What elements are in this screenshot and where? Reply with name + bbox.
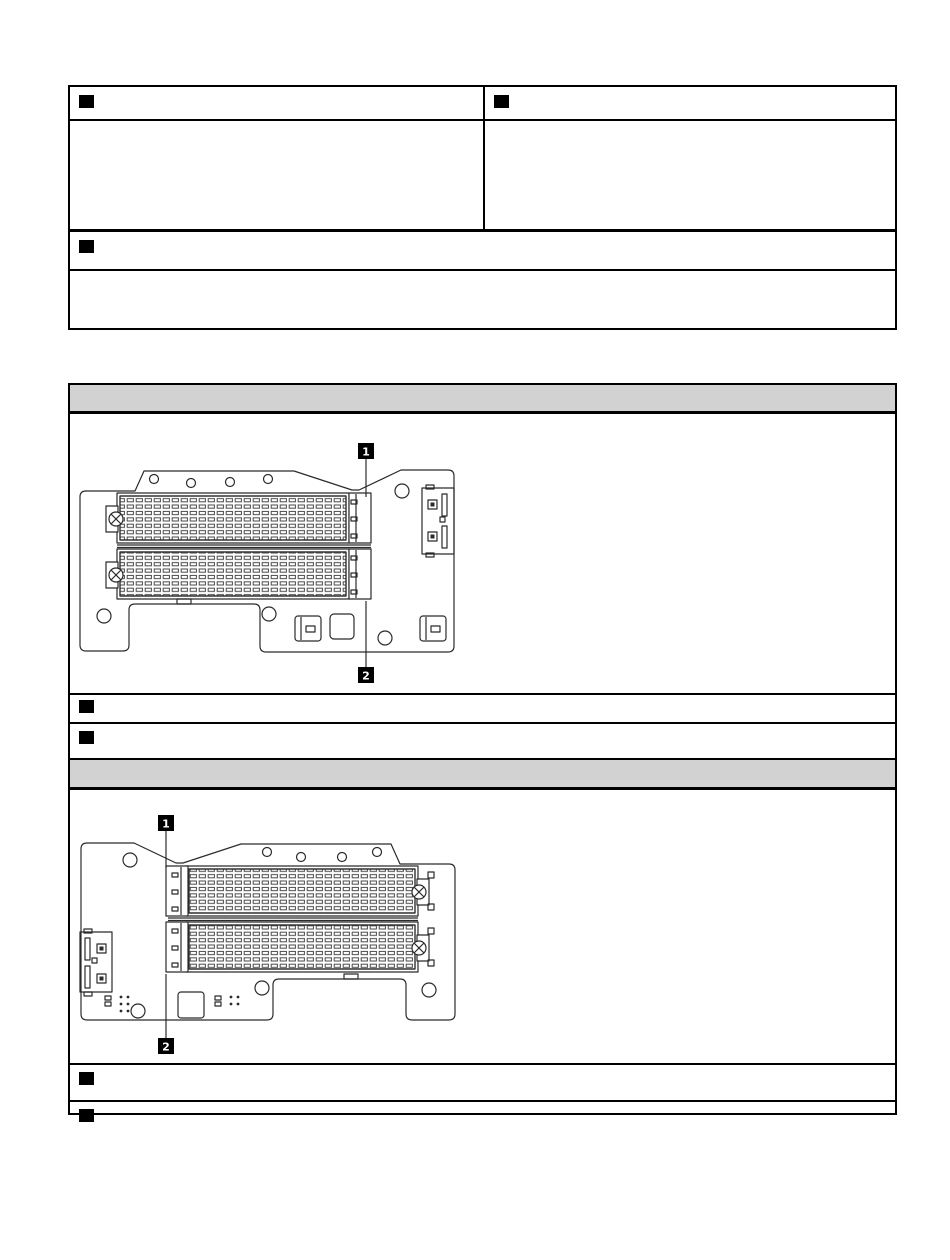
document-page: 1 2 [0, 0, 950, 1260]
section2-marker-row-2 [70, 1109, 895, 1137]
table1-header-row-span [70, 240, 895, 271]
table1-body-cell-2 [485, 121, 895, 229]
section1-marker-row-2 [70, 731, 895, 760]
signal-connectors [422, 485, 454, 557]
m2-drive-heatsink-2 [106, 549, 371, 599]
table1-body-span-text [70, 271, 895, 336]
solder-pad-features [105, 992, 239, 1018]
screw-hole-icon [150, 475, 159, 484]
mounting-hole-icon [123, 853, 137, 867]
callout-marker-icon [494, 95, 509, 108]
callout-1-number: 1 [162, 818, 170, 831]
mounting-hole-icon [395, 484, 409, 498]
latch-features [295, 614, 446, 641]
diagram-table: 1 2 [68, 383, 897, 1115]
bottom-edge-tab [177, 599, 191, 604]
callout-marker-icon [79, 240, 94, 253]
m2-adapter-rear-diagram: 1 2 [72, 790, 492, 1063]
table1-body-row-span [70, 271, 895, 336]
callout-2-number: 2 [362, 670, 370, 683]
table1-body-row [70, 121, 895, 232]
screw-hole-icon [226, 478, 235, 487]
screw-hole-icon [264, 475, 273, 484]
section2-title-bar [70, 760, 895, 790]
screw-hole-icon [297, 853, 306, 862]
m2-adapter-front-diagram: 1 2 [72, 414, 492, 693]
screw-hole-icon [338, 853, 347, 862]
signal-connectors [80, 929, 112, 996]
table1-body-text-2 [485, 121, 895, 229]
screw-hole-icon [187, 479, 196, 488]
screw-hole-icon [373, 848, 382, 857]
callout-1: 1 [158, 815, 174, 831]
m2-drive-heatsink-1 [106, 493, 371, 543]
mounting-hole-icon [255, 981, 269, 995]
board-line-art [80, 831, 455, 1038]
table1-body-cell-1 [70, 121, 485, 229]
callout-table-top [68, 85, 897, 330]
bottom-edge-tab [344, 974, 358, 979]
mounting-hole-icon [422, 983, 436, 997]
mounting-hole-icon [97, 609, 111, 623]
table1-header-cell-1 [70, 87, 485, 119]
screw-hole-icon [263, 848, 272, 857]
board-line-art [80, 459, 454, 667]
callout-1: 1 [358, 443, 374, 459]
callout-marker-icon [79, 731, 94, 744]
section1-title-text [70, 385, 895, 411]
section2-title-text [70, 760, 895, 787]
callout-marker-icon [79, 1072, 94, 1085]
callout-marker-icon [79, 700, 94, 713]
table1-header-row [70, 87, 895, 121]
callout-2: 2 [158, 1038, 174, 1054]
callout-1-number: 1 [362, 446, 370, 459]
section1-diagram-cell: 1 2 [70, 414, 895, 695]
callout-marker-icon [79, 95, 94, 108]
table1-body-text-1 [70, 121, 483, 229]
mounting-hole-icon [378, 631, 392, 645]
m2-drive-heatsink-2 [166, 922, 434, 972]
m2-drive-heatsink-1 [166, 866, 434, 916]
section1-marker-row-1 [70, 700, 895, 724]
table1-header-cell-2 [485, 87, 895, 119]
callout-marker-icon [79, 1109, 94, 1122]
callout-2: 2 [358, 667, 374, 683]
mounting-hole-icon [262, 607, 276, 621]
section2-diagram-cell: 1 2 [70, 790, 895, 1065]
mounting-hole-icon [131, 1004, 145, 1018]
section1-title-bar [70, 385, 895, 414]
section2-marker-row-1 [70, 1072, 895, 1102]
callout-2-number: 2 [162, 1041, 170, 1054]
